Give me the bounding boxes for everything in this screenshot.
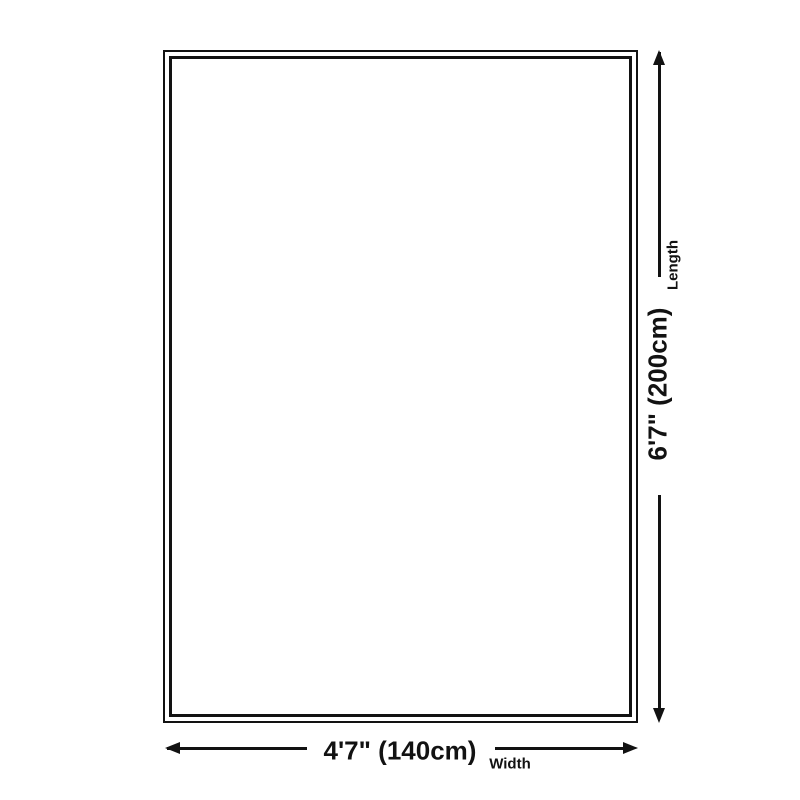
length-dimension-line-top — [658, 52, 661, 277]
length-label: Length — [665, 240, 682, 290]
width-label: Width — [489, 756, 531, 773]
arrow-right-icon — [623, 742, 638, 754]
arrow-down-icon — [653, 708, 665, 723]
product-inner-border — [169, 56, 632, 717]
length-value: 6'7" (200cm) — [643, 308, 674, 461]
length-dimension-line-bottom — [658, 495, 661, 708]
width-dimension-line-left — [167, 747, 307, 750]
product-outline — [163, 50, 638, 723]
width-value: 4'7" (140cm) — [324, 736, 477, 767]
width-dimension-line-right — [495, 747, 623, 750]
dimension-diagram: Length 6'7" (200cm) 4'7" (140cm) Width — [0, 0, 800, 800]
